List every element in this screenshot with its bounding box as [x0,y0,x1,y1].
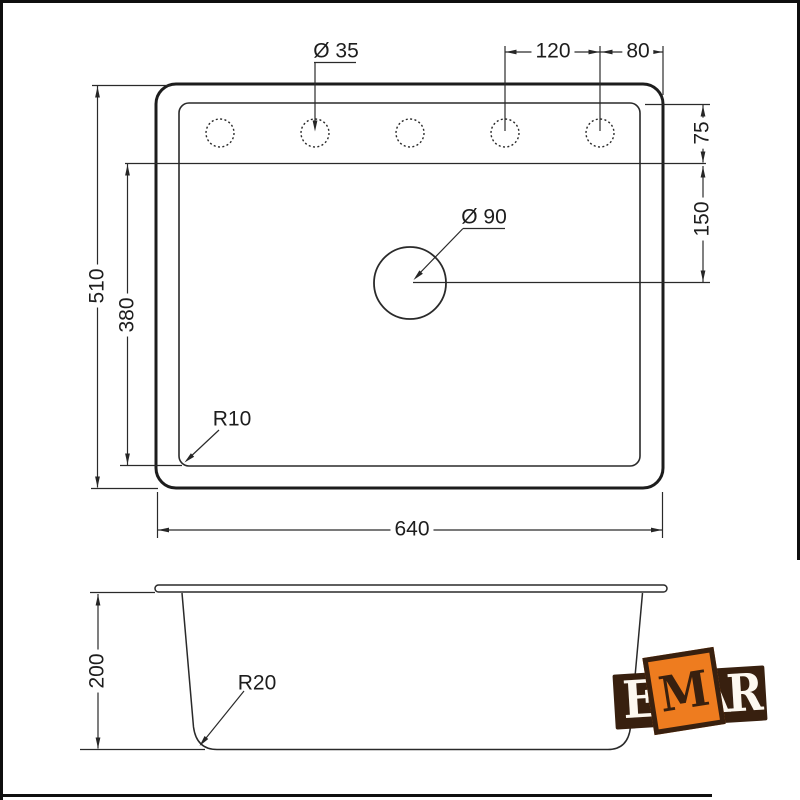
arrow [506,50,517,55]
faucet-hole-3 [396,119,424,147]
arrow [602,50,613,55]
dim-label-80: 80 [622,40,653,63]
dim-150 [413,166,710,283]
dim-label-r10: R10 [213,409,252,430]
arrow [589,50,600,55]
arrow [95,477,100,488]
arrow [158,528,169,533]
side-view-rim [155,585,667,592]
arrow [95,87,100,98]
dim-label-75: 75 [691,117,714,148]
emar-logo: E AR M [608,650,786,770]
dim-label-r20: R20 [238,673,277,694]
leader-hole-dia [314,63,356,123]
arrow [313,121,318,132]
dim-label-drain-dia: Ø 90 [461,207,507,228]
arrow [96,595,101,606]
faucet-hole-1 [206,119,234,147]
emar-letter-m: M [656,663,713,719]
arrow [701,106,706,117]
arrow [125,454,130,465]
arrow [701,167,706,178]
emar-logo-m-square: M [642,647,725,735]
dim-label-hole-dia: Ø 35 [313,41,359,62]
arrow [96,738,101,749]
dim-label-150: 150 [691,197,714,240]
arrow [651,528,662,533]
dim-label-380: 380 [116,293,139,336]
arrow [701,152,706,163]
arrow [125,165,130,176]
sink-technical-drawing: 510 380 640 120 80 75 150 Ø 35 Ø 90 R10 … [0,0,800,800]
leader-bowl-radius [202,691,244,743]
dim-label-640: 640 [390,518,433,541]
dim-label-510: 510 [86,264,109,307]
arrow [701,271,706,282]
dim-label-120: 120 [531,40,574,63]
faucet-holes [206,119,614,147]
dim-label-200: 200 [86,649,109,692]
